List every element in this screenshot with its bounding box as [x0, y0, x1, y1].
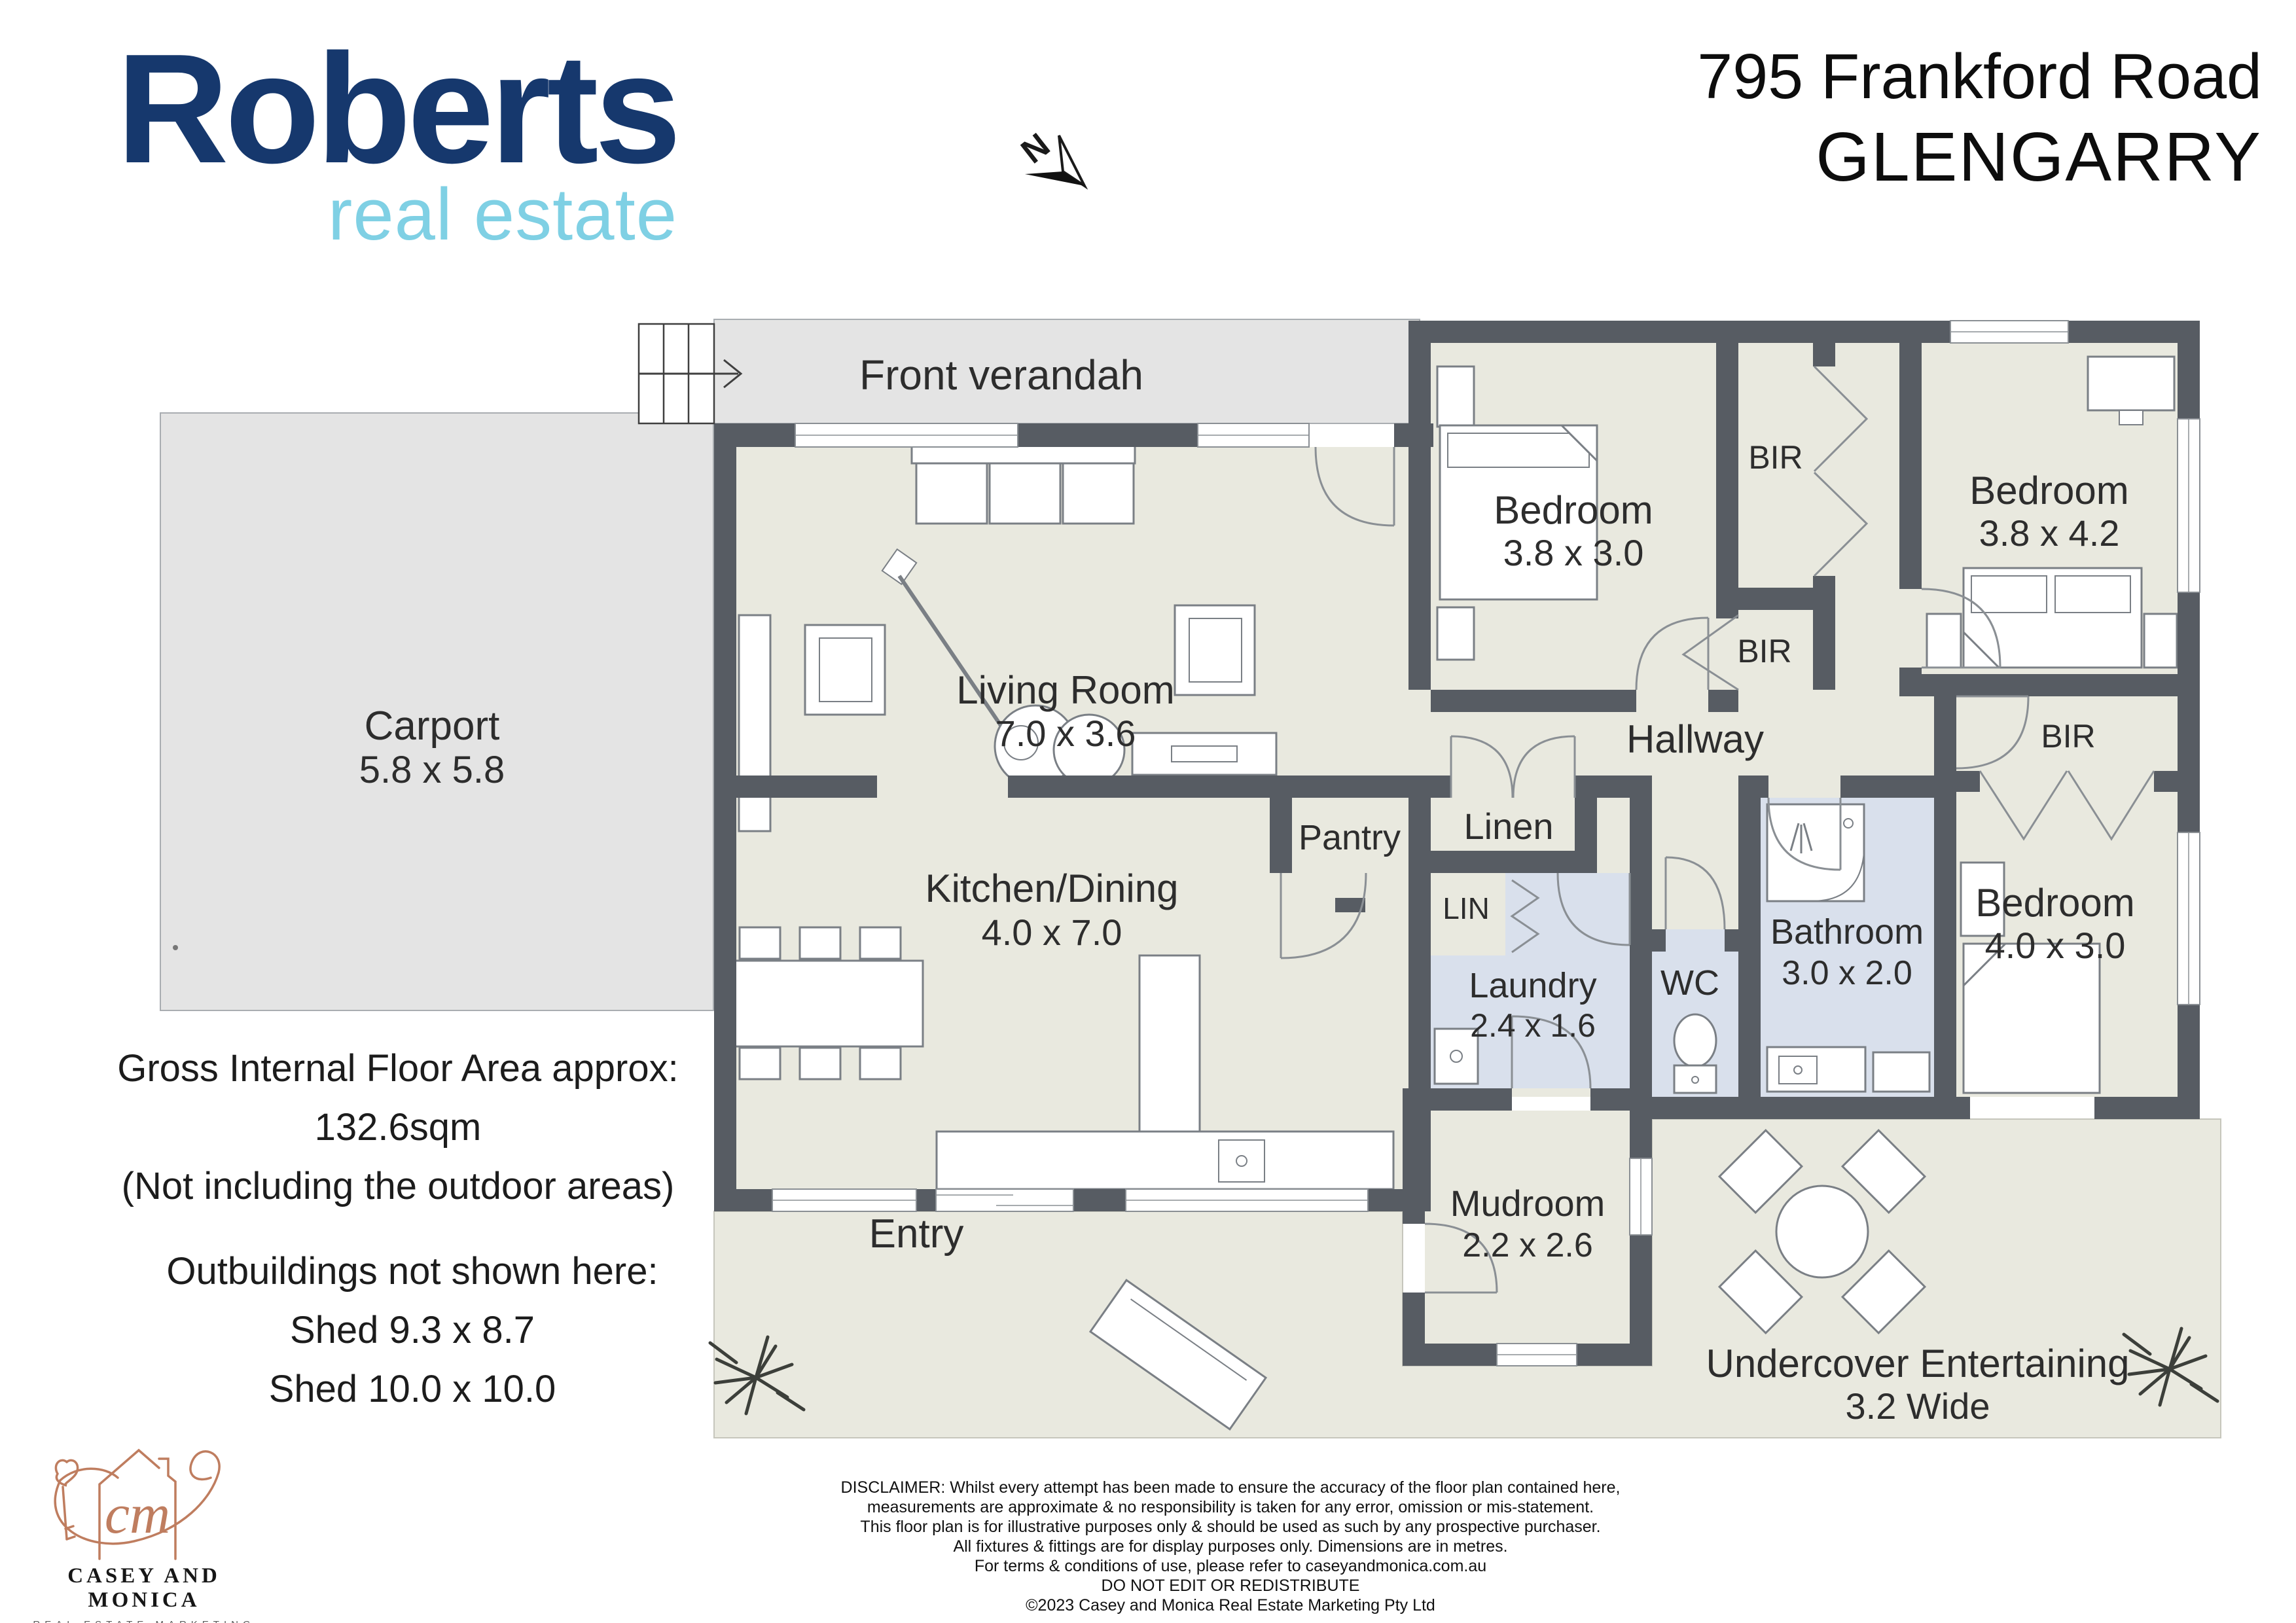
label-bedroom3: Bedroom	[1975, 881, 2134, 925]
label-bathroom-dims: 3.0 x 2.0	[1782, 954, 1912, 992]
label-bedroom2-dims: 3.8 x 4.2	[1979, 512, 2120, 554]
label-undercover: Undercover Entertaining	[1706, 1342, 2129, 1385]
label-linen: Linen	[1463, 806, 1553, 847]
floorplan-page: Roberts real estate 795 Frankford Road G…	[0, 0, 2296, 1623]
label-kitchen-dims: 4.0 x 7.0	[982, 912, 1122, 953]
label-front-verandah: Front verandah	[859, 351, 1143, 399]
label-carport: Carport	[365, 704, 500, 749]
carport-mark	[173, 945, 178, 950]
label-hallway: Hallway	[1626, 717, 1764, 761]
label-entry: Entry	[869, 1211, 964, 1257]
label-laundry-dims: 2.4 x 1.6	[1470, 1007, 1596, 1044]
label-pantry: Pantry	[1299, 818, 1401, 857]
label-bir1: BIR	[1748, 439, 1803, 476]
label-mudroom: Mudroom	[1450, 1183, 1605, 1224]
casey-monica-monogram: cm	[105, 1482, 170, 1545]
label-bedroom1-dims: 3.8 x 3.0	[1503, 532, 1644, 573]
label-bedroom3-dims: 4.0 x 3.0	[1985, 925, 2126, 966]
label-mudroom-dims: 2.2 x 2.6	[1462, 1226, 1592, 1264]
entry-sliding-door	[936, 1189, 1073, 1211]
casey-monica-logo-icon: cm	[55, 1450, 219, 1559]
label-undercover-dims: 3.2 Wide	[1846, 1385, 1990, 1427]
label-wc: WC	[1660, 963, 1719, 1003]
label-bir2: BIR	[1737, 633, 1791, 669]
label-lin: LIN	[1443, 891, 1490, 925]
label-living-dims: 7.0 x 3.6	[996, 713, 1136, 754]
label-bir3: BIR	[2041, 718, 2095, 755]
label-bathroom: Bathroom	[1770, 912, 1924, 952]
label-carport-dims: 5.8 x 5.8	[359, 749, 505, 791]
floor-plan: N	[0, 0, 2296, 1623]
label-laundry: Laundry	[1469, 966, 1596, 1005]
north-arrow-icon: N	[1014, 126, 1085, 186]
north-letter: N	[1014, 126, 1057, 171]
label-bedroom1: Bedroom	[1494, 488, 1653, 532]
label-living: Living Room	[956, 668, 1175, 712]
label-bedroom2: Bedroom	[1969, 469, 2128, 512]
wc-toilet	[1674, 1014, 1716, 1093]
label-kitchen: Kitchen/Dining	[925, 866, 1179, 910]
